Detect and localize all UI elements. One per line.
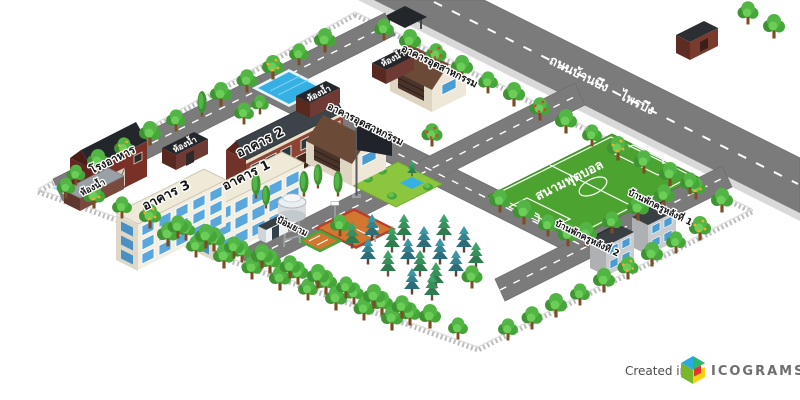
campus-map: ถนนบ้านบึง - ไพรบึง อาคารอุตสาหกรรม ห้อง… <box>0 0 800 400</box>
tree-icon <box>462 265 483 288</box>
tree-icon <box>448 250 464 277</box>
tree-icon <box>545 293 567 318</box>
watermark: Created in ICOGRAMS <box>625 356 800 384</box>
bush-icon <box>387 192 397 199</box>
tree-icon <box>448 317 468 339</box>
tree-icon <box>422 123 443 146</box>
tree-icon <box>763 14 785 39</box>
tree-icon <box>570 283 590 305</box>
bush-icon <box>423 183 433 190</box>
tree-icon <box>396 214 412 241</box>
tree-icon <box>298 278 318 300</box>
tree-icon <box>498 318 518 340</box>
tree-icon <box>432 238 448 265</box>
neighbor-house <box>676 21 718 60</box>
map-canvas: ถนนบ้านบึง - ไพรบึง อาคารอุตสาหกรรม ห้อง… <box>0 0 800 400</box>
tree-icon <box>436 214 452 241</box>
tree-icon <box>503 82 525 107</box>
tree-icon <box>456 226 472 253</box>
tree-icon <box>419 304 441 329</box>
tree-icon <box>334 171 343 197</box>
icograms-logo-icon <box>681 356 705 384</box>
tree-icon <box>404 268 420 295</box>
tree-icon <box>314 164 323 188</box>
icograms-wordmark: ICOGRAMS <box>711 364 800 379</box>
tree-icon <box>400 238 416 265</box>
created-in-text: Created in <box>625 364 687 378</box>
tree-icon <box>380 250 396 277</box>
tree-icon <box>416 226 432 253</box>
tree-icon <box>738 1 759 24</box>
